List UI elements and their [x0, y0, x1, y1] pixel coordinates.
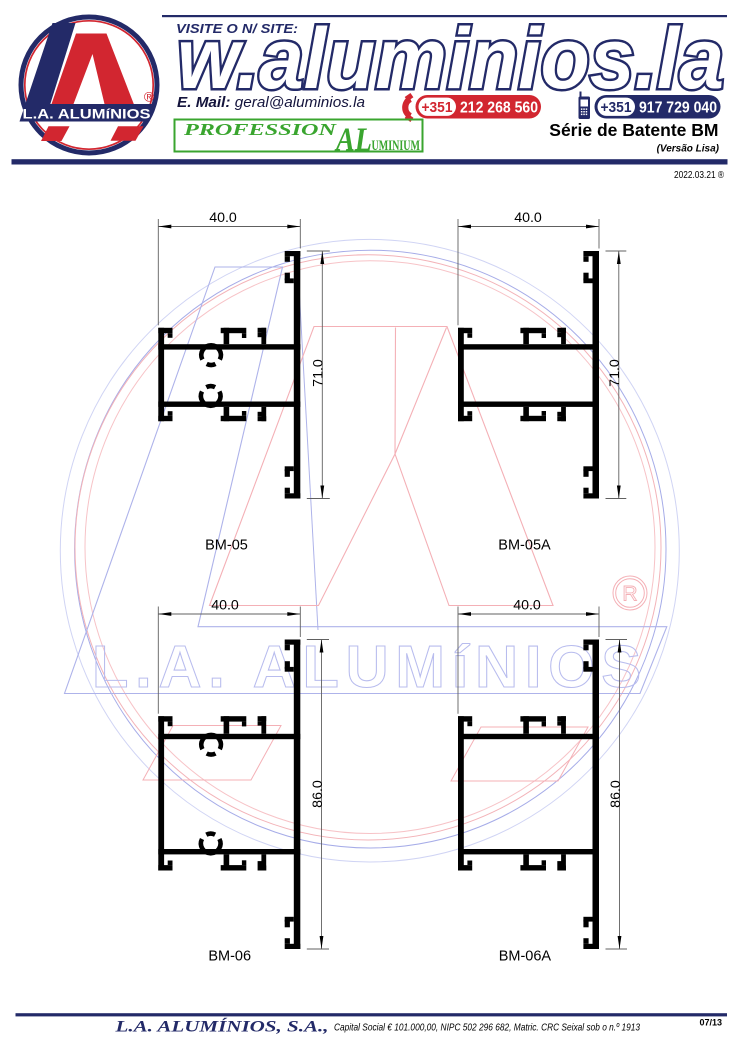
svg-text:07/13: 07/13	[699, 1018, 722, 1028]
svg-text:R: R	[622, 583, 637, 606]
svg-text:L.A. ALUMÍNIOS, S.A.,: L.A. ALUMÍNIOS, S.A.,	[114, 1019, 328, 1036]
svg-text:71.0: 71.0	[607, 359, 623, 387]
svg-text:917 729 040: 917 729 040	[639, 100, 717, 117]
svg-text:Série de Batente BM: Série de Batente BM	[549, 120, 718, 140]
svg-text:w.aluminios.la: w.aluminios.la	[177, 11, 724, 107]
svg-text:BM-06: BM-06	[208, 948, 251, 964]
svg-text:UMINIUM: UMINIUM	[372, 138, 421, 154]
svg-text:BM-06A: BM-06A	[499, 948, 552, 964]
svg-text:E. Mail: geral@aluminios.la: E. Mail: geral@aluminios.la	[177, 95, 365, 111]
svg-text:86.0: 86.0	[608, 780, 624, 808]
svg-text:PROFESSION: PROFESSION	[183, 120, 337, 139]
svg-text:40.0: 40.0	[513, 598, 541, 614]
svg-text:(Versão Lisa): (Versão Lisa)	[657, 143, 720, 154]
svg-text:L.A. ALUMíNIOS: L.A. ALUMíNIOS	[23, 107, 151, 122]
svg-text:2022.03.21 ®: 2022.03.21 ®	[674, 170, 724, 181]
svg-text:BM-05A: BM-05A	[498, 538, 551, 554]
svg-text:BM-05: BM-05	[205, 538, 248, 554]
svg-text:L.A. ALUMíNIOS: L.A. ALUMíNIOS	[92, 633, 641, 700]
svg-text:Capital Social € 101.000,00, N: Capital Social € 101.000,00, NIPC 502 29…	[334, 1022, 640, 1034]
svg-text:®: ®	[144, 89, 155, 105]
svg-text:40.0: 40.0	[211, 598, 239, 614]
svg-text:212 268 560: 212 268 560	[460, 100, 538, 117]
svg-text:40.0: 40.0	[514, 210, 542, 226]
svg-text:86.0: 86.0	[310, 780, 326, 808]
svg-text:40.0: 40.0	[209, 210, 237, 226]
svg-text:71.0: 71.0	[311, 359, 327, 387]
svg-text:+351: +351	[601, 100, 632, 116]
svg-text:AL: AL	[334, 122, 372, 159]
svg-text:+351: +351	[422, 100, 453, 116]
